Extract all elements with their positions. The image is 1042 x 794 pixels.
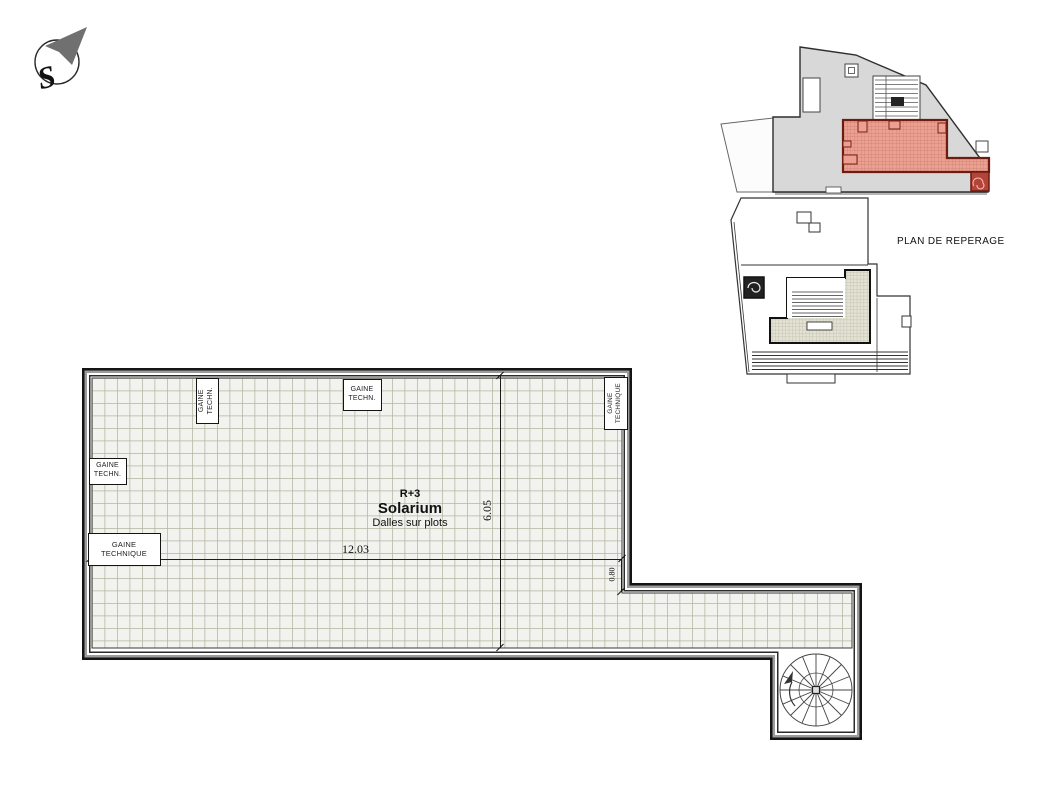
spiral-staircase: [780, 654, 852, 726]
compass-north-icon: S: [34, 27, 87, 96]
dimension-line-offset: [621, 560, 622, 592]
dimension-line-height: [500, 376, 501, 648]
duct-label: GAINE TECHN.: [348, 386, 375, 404]
reference-map-lower-building: [731, 198, 911, 383]
floor-plan-drawing: S: [0, 0, 1042, 794]
dimension-offset-value: 0.80: [608, 568, 617, 582]
dimension-width-value: 12.03: [342, 542, 369, 557]
dimension-line-width: [90, 559, 622, 560]
duct-box-top-center: GAINE TECHN.: [343, 379, 382, 411]
duct-label: GAINE TECHNIQUE: [607, 383, 623, 423]
room-name: Solarium: [330, 500, 490, 517]
reference-map-upper-building: [721, 47, 989, 195]
duct-box-left-small: GAINE TECHN.: [89, 458, 127, 485]
duct-label: GAINE TECHNIQUE: [101, 540, 147, 559]
duct-box-top-left: GAINE TECHN.: [196, 378, 219, 424]
floor-plan-page: S: [0, 0, 1042, 794]
mini-stairwell: [873, 76, 920, 121]
reference-map-title: PLAN DE REPERAGE: [897, 236, 1005, 247]
duct-box-top-right: GAINE TECHNIQUE: [604, 377, 628, 430]
room-level: R+3: [330, 488, 490, 500]
duct-label: GAINE TECHN.: [198, 387, 216, 414]
room-label: R+3 Solarium Dalles sur plots: [330, 488, 490, 529]
main-floor-plan: [82, 368, 862, 740]
duct-label: GAINE TECHN.: [94, 462, 121, 480]
duct-box-left-large: GAINE TECHNIQUE: [88, 533, 161, 566]
compass-south-label: S: [34, 58, 59, 96]
room-subtitle: Dalles sur plots: [330, 517, 490, 529]
